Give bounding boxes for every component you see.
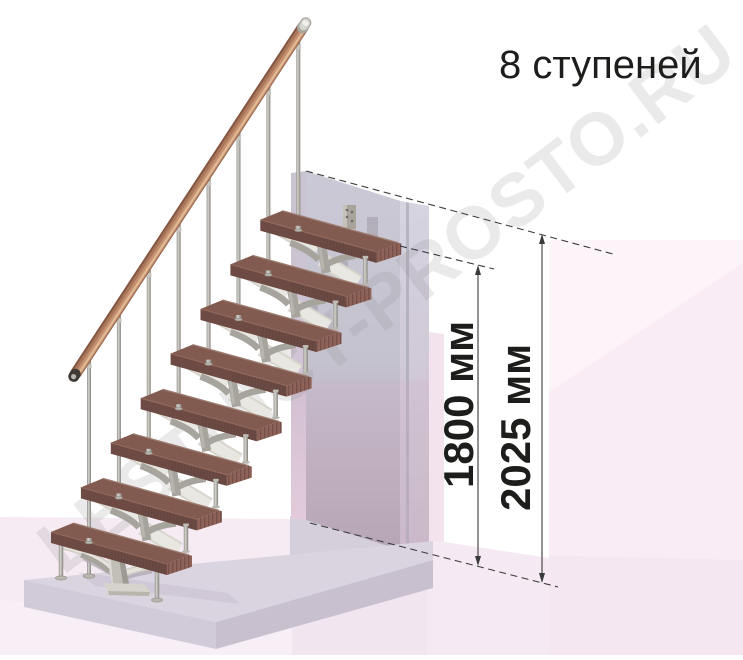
svg-text:1800 мм: 1800 мм: [435, 321, 482, 488]
svg-text:2025 мм: 2025 мм: [492, 344, 539, 511]
svg-text:8 ступеней: 8 ступеней: [499, 43, 702, 87]
